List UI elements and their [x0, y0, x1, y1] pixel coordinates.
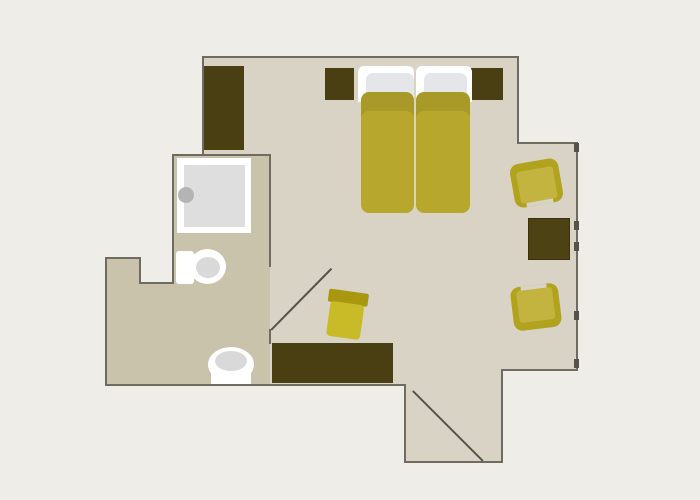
wall-bathroom-top [172, 154, 271, 156]
wall-top [203, 56, 519, 58]
wall-hall-left [105, 257, 107, 386]
wall-wing-top [517, 142, 578, 144]
wardrobe [204, 66, 244, 150]
window-tick-5 [574, 359, 579, 368]
wall-hall-top [105, 257, 141, 259]
window-tick-2 [574, 221, 579, 230]
wall-entry-left [404, 384, 406, 463]
wall-bathroom-left [172, 154, 174, 284]
wall-right-upper [517, 56, 519, 144]
bidet-bowl-inner [215, 351, 247, 371]
armchair-upper [509, 157, 565, 209]
wall-entry-bottom [404, 461, 503, 463]
armchair-lower-seat [516, 287, 556, 323]
window-tick-3 [574, 242, 579, 251]
armchair-lower [509, 282, 562, 332]
coffee-table [528, 218, 570, 260]
floor-hall-left [106, 258, 140, 385]
desk [272, 343, 393, 383]
hotel-room-floorplan [0, 0, 700, 500]
desk-stool-seat [326, 301, 365, 340]
wall-step-bottom [139, 282, 174, 284]
wall-step-right [139, 257, 141, 284]
window-tick-4 [574, 311, 579, 320]
wall-wing-bottom [501, 369, 578, 371]
wall-entry-right [501, 369, 503, 463]
wall-bottom [105, 384, 406, 386]
nightstand-right [471, 68, 503, 100]
desk-stool [323, 288, 369, 340]
duvet-right-body [416, 111, 470, 213]
wall-bathroom-right-upper [269, 155, 271, 267]
window-tick-1 [574, 143, 579, 152]
shower-knob [178, 187, 194, 203]
nightstand-left [325, 68, 354, 100]
toilet-bowl-inner [196, 257, 220, 278]
duvet-left-body [361, 111, 414, 213]
wall-right [576, 142, 578, 371]
wall-bathroom-right-stub [269, 329, 271, 344]
